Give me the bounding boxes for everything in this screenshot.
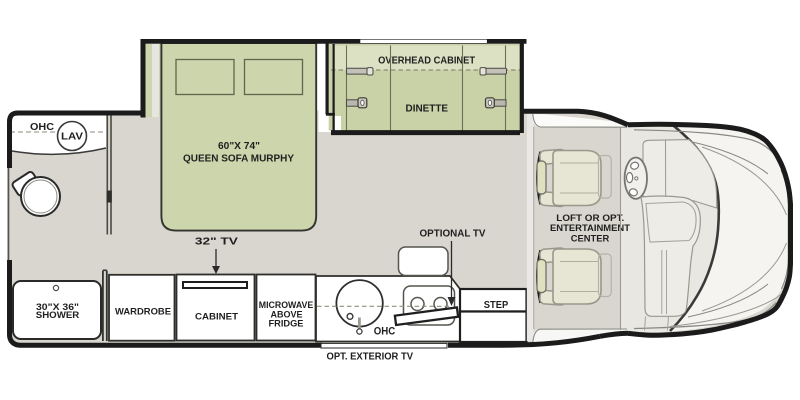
svg-text:60"X 74": 60"X 74" bbox=[218, 140, 260, 152]
svg-text:FRIDGE: FRIDGE bbox=[269, 319, 304, 329]
svg-text:OVERHEAD CABINET: OVERHEAD CABINET bbox=[378, 56, 475, 67]
svg-text:LAV: LAV bbox=[61, 132, 83, 143]
svg-text:32" TV: 32" TV bbox=[195, 236, 238, 248]
svg-text:ENTERTAINMENT: ENTERTAINMENT bbox=[550, 223, 631, 233]
svg-text:DINETTE: DINETTE bbox=[406, 103, 449, 115]
svg-text:CABINET: CABINET bbox=[195, 312, 238, 323]
svg-text:WARDROBE: WARDROBE bbox=[115, 307, 171, 317]
svg-text:OPT. EXTERIOR TV: OPT. EXTERIOR TV bbox=[327, 350, 414, 362]
svg-text:STEP: STEP bbox=[484, 299, 509, 311]
svg-text:OPTIONAL TV: OPTIONAL TV bbox=[420, 229, 486, 240]
svg-text:LOFT OR OPT.: LOFT OR OPT. bbox=[556, 213, 624, 223]
svg-text:SHOWER: SHOWER bbox=[36, 310, 80, 321]
svg-text:OHC: OHC bbox=[30, 121, 54, 133]
svg-text:OHC: OHC bbox=[374, 326, 396, 338]
svg-text:CENTER: CENTER bbox=[571, 233, 610, 243]
svg-text:QUEEN SOFA MURPHY: QUEEN SOFA MURPHY bbox=[183, 153, 294, 165]
